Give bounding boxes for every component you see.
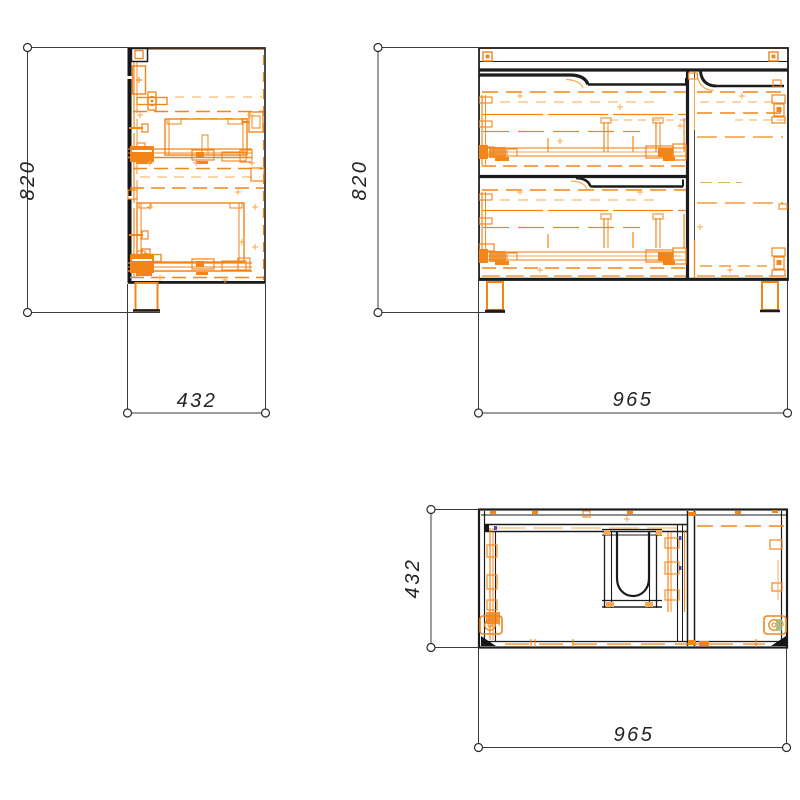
dim-label-front-width: 965 bbox=[613, 389, 654, 411]
side-leg bbox=[133, 283, 160, 311]
top-corner-green-fitting bbox=[776, 619, 782, 631]
front-view bbox=[479, 48, 788, 311]
front-leg-right bbox=[760, 282, 780, 311]
front-leg-left bbox=[485, 282, 505, 311]
dim-label-top-depth: 432 bbox=[402, 558, 424, 599]
side-view bbox=[127, 48, 265, 311]
top-cabinet-body bbox=[479, 510, 787, 648]
dim-top-width: 965 bbox=[475, 648, 791, 752]
top-view bbox=[479, 510, 787, 648]
dim-label-top-width: 965 bbox=[614, 724, 655, 746]
dim-top-depth: 432 bbox=[402, 506, 479, 652]
dim-label-front-height: 820 bbox=[349, 160, 371, 201]
dim-side-depth: 432 bbox=[124, 284, 270, 417]
drawing-canvas: 820 432 820 965 bbox=[0, 0, 800, 800]
technical-drawing: 820 432 820 965 bbox=[0, 0, 800, 800]
side-front-panel bbox=[127, 48, 132, 283]
dim-label-side-depth: 432 bbox=[177, 390, 218, 412]
dim-label-side-height: 820 bbox=[17, 160, 39, 201]
